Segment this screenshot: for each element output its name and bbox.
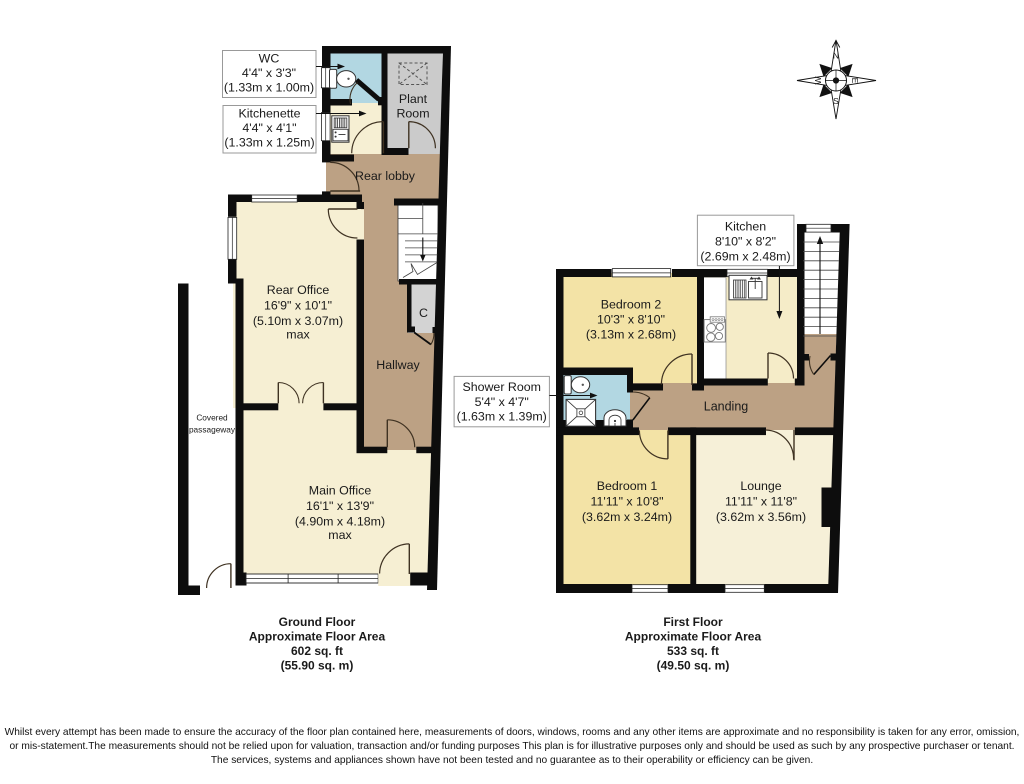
- svg-text:The services, systems and appl: The services, systems and appliances sho…: [211, 755, 813, 766]
- svg-text:5'4" x 4'7": 5'4" x 4'7": [475, 395, 529, 409]
- svg-text:Approximate Floor Area: Approximate Floor Area: [625, 630, 762, 644]
- svg-text:max: max: [328, 528, 352, 542]
- svg-text:(1.33m x 1.25m): (1.33m x 1.25m): [224, 136, 314, 150]
- svg-text:N: N: [833, 51, 839, 61]
- svg-text:or mis-statement.The measureme: or mis-statement.The measurements should…: [10, 741, 1015, 752]
- svg-text:(1.63m x 1.39m): (1.63m x 1.39m): [457, 410, 547, 424]
- svg-text:(3.13m x 2.68m): (3.13m x 2.68m): [586, 328, 676, 342]
- svg-text:passageway: passageway: [189, 425, 236, 435]
- svg-text:Kitchenette: Kitchenette: [239, 107, 301, 121]
- svg-text:WC: WC: [259, 52, 280, 66]
- svg-text:Bedroom 1: Bedroom 1: [597, 479, 658, 493]
- svg-text:First Floor: First Floor: [663, 615, 723, 629]
- svg-text:(55.90 sq. m): (55.90 sq. m): [281, 659, 354, 673]
- svg-text:602 sq. ft: 602 sq. ft: [291, 644, 343, 658]
- svg-text:(4.90m x 4.18m): (4.90m x 4.18m): [295, 515, 385, 529]
- svg-text:Hallway: Hallway: [376, 358, 420, 372]
- svg-text:4'4" x 3'3": 4'4" x 3'3": [242, 66, 296, 80]
- svg-text:Landing: Landing: [704, 400, 749, 414]
- svg-text:Covered: Covered: [196, 413, 228, 423]
- svg-text:(3.62m x 3.56m): (3.62m x 3.56m): [716, 510, 806, 524]
- svg-text:W: W: [813, 76, 823, 84]
- svg-text:10'3" x 8'10": 10'3" x 8'10": [597, 313, 665, 327]
- svg-text:11'11" x 11'8": 11'11" x 11'8": [725, 495, 797, 509]
- svg-text:4'4" x 4'1": 4'4" x 4'1": [242, 121, 296, 135]
- svg-text:(5.10m x 3.07m): (5.10m x 3.07m): [253, 314, 343, 328]
- svg-text:(3.62m x 3.24m): (3.62m x 3.24m): [582, 510, 672, 524]
- svg-text:8'10" x 8'2": 8'10" x 8'2": [715, 235, 776, 249]
- svg-text:Ground Floor: Ground Floor: [279, 615, 356, 629]
- svg-text:533 sq. ft: 533 sq. ft: [667, 644, 719, 658]
- svg-text:Kitchen: Kitchen: [725, 220, 766, 234]
- svg-text:(1.33m x 1.00m): (1.33m x 1.00m): [224, 81, 314, 95]
- svg-text:Main Office: Main Office: [309, 484, 372, 498]
- svg-text:11'11" x 10'8": 11'11" x 10'8": [590, 495, 663, 509]
- svg-text:Lounge: Lounge: [740, 479, 781, 493]
- svg-text:Room: Room: [396, 107, 429, 121]
- svg-text:(2.69m x 2.48m): (2.69m x 2.48m): [700, 250, 790, 264]
- svg-text:C: C: [419, 306, 428, 320]
- svg-text:max: max: [286, 328, 310, 342]
- svg-text:16'9" x 10'1": 16'9" x 10'1": [264, 299, 332, 313]
- svg-text:Whilst every attempt has been: Whilst every attempt has been made to en…: [5, 727, 1020, 738]
- svg-text:S: S: [833, 96, 839, 106]
- svg-text:16'1" x 13'9": 16'1" x 13'9": [306, 499, 374, 513]
- svg-text:(49.50 sq. m): (49.50 sq. m): [657, 659, 730, 673]
- svg-text:Plant: Plant: [399, 92, 428, 106]
- svg-text:Shower Room: Shower Room: [462, 380, 541, 394]
- svg-text:Approximate Floor Area: Approximate Floor Area: [249, 630, 386, 644]
- svg-text:E: E: [850, 78, 860, 84]
- svg-text:Bedroom 2: Bedroom 2: [601, 298, 662, 312]
- svg-text:Rear Office: Rear Office: [267, 283, 330, 297]
- svg-text:Rear lobby: Rear lobby: [355, 169, 416, 183]
